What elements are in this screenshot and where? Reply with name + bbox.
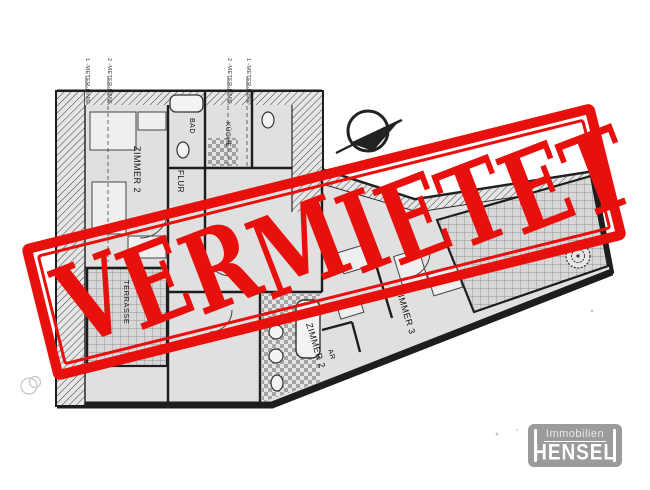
meter-line-label: 1 -METER-LINIE	[84, 58, 90, 104]
meter-line-label: 1 -METER-LINIE	[245, 58, 251, 104]
immobilien-hensel-logo: Immobilien HENSEL	[528, 424, 622, 467]
room-label-zimmer2-upper: ZIMMER 2	[132, 146, 142, 193]
room-label-kueche: KÜCHE	[224, 122, 232, 147]
scanned-floor-plan-page: 1 -METER-LINIE 2 -METER-LINIE 2 -METER-L…	[0, 0, 650, 490]
north-arrow-icon	[336, 111, 402, 153]
logo-line2: HENSEL	[534, 442, 617, 464]
room-label-bad: BAD	[188, 118, 195, 134]
room-label-flur: FLUR	[176, 170, 185, 193]
meter-line-label: 2 -METER-LINIE	[106, 58, 112, 104]
meter-line-label: 2 -METER-LINIE	[226, 58, 232, 104]
